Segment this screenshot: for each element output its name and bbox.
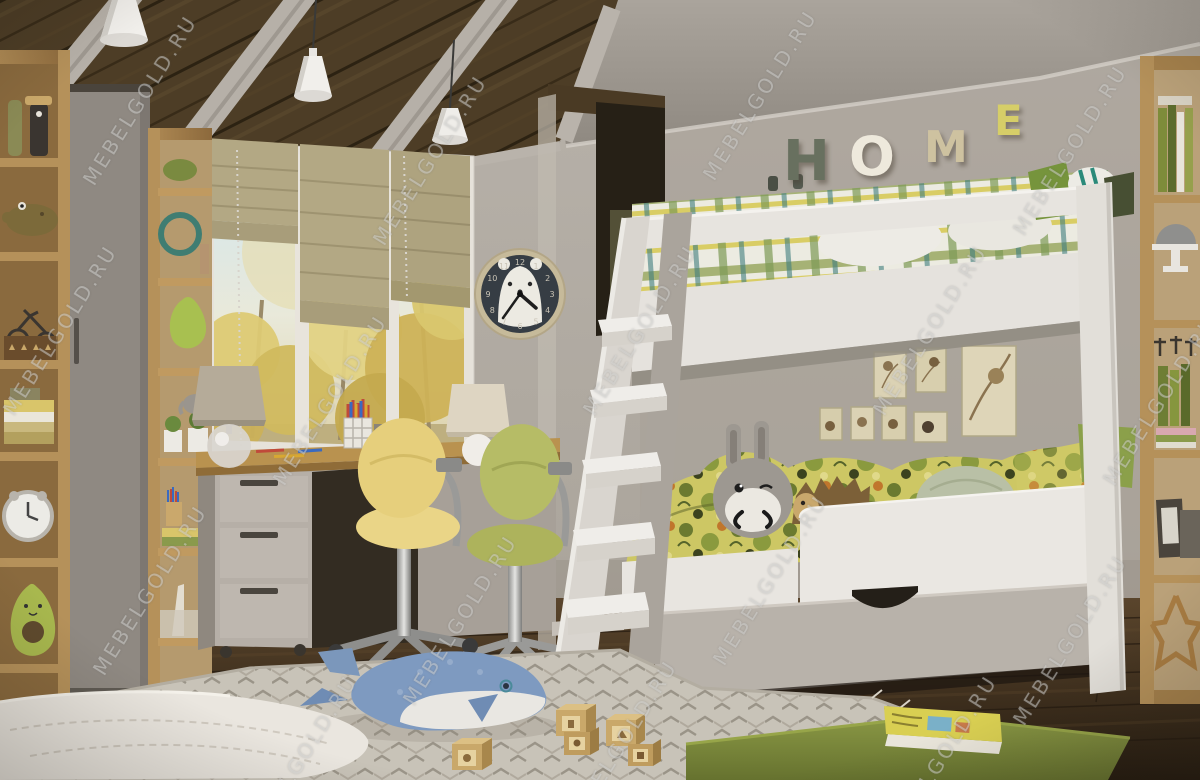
wall-letter-o: O [849,130,895,184]
kids-room-photo: 121234567891011 [0,0,1200,780]
wall-letter-h: H [783,134,830,190]
wall-letter-m: M [924,126,968,170]
wall-letter-e: E [994,100,1023,142]
